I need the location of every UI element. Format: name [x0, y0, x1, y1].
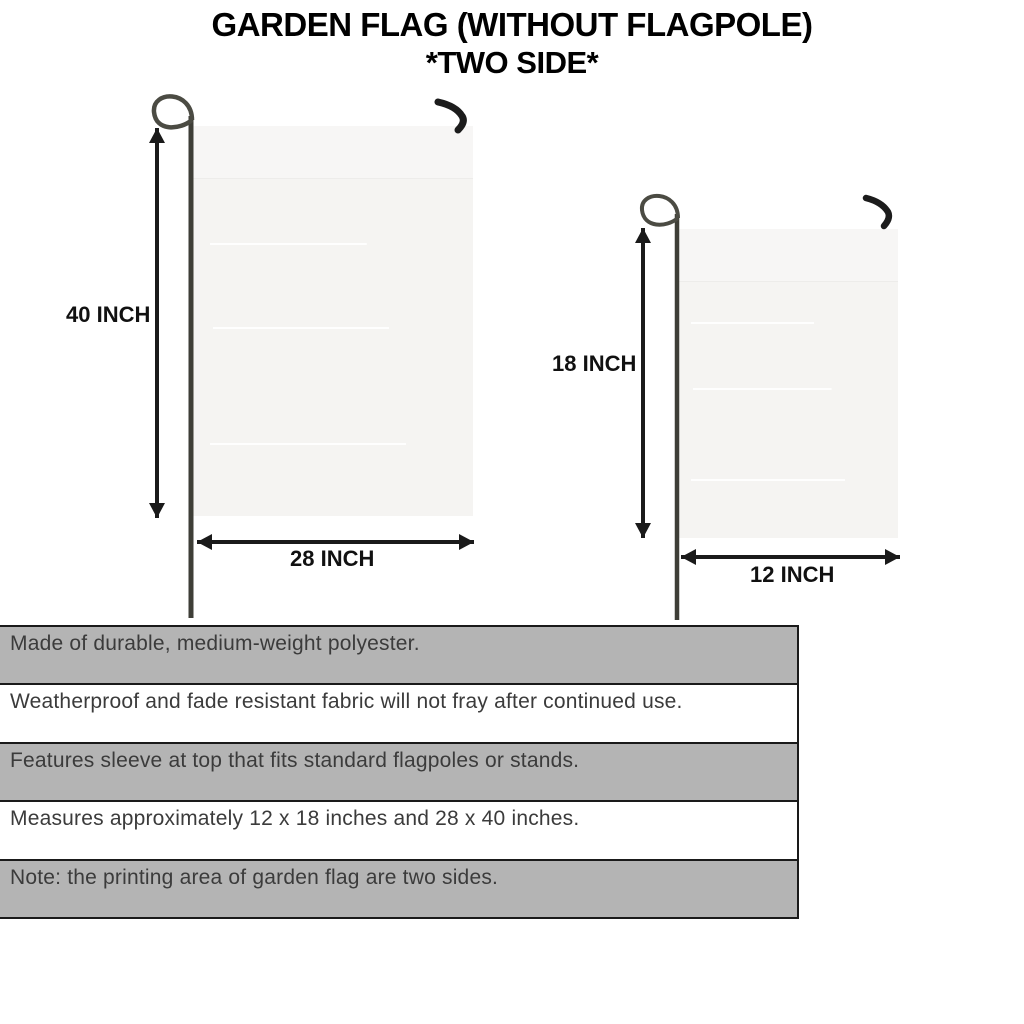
features-table: Made of durable, medium-weight polyester…	[0, 625, 799, 919]
title-line-2: *TWO SIDE*	[0, 45, 1024, 82]
small-flag-width-arrow	[681, 555, 900, 559]
title-line-1: GARDEN FLAG (WITHOUT FLAGPOLE)	[0, 6, 1024, 45]
feature-row-note: Note: the printing area of garden flag a…	[0, 859, 797, 917]
large-flag-height-label: 40 INCH	[66, 302, 150, 328]
pole-loop-icon	[642, 196, 678, 225]
small-flag-height-label: 18 INCH	[552, 351, 636, 377]
feature-row-polyester: Made of durable, medium-weight polyester…	[0, 627, 797, 683]
pole-hook-icon	[438, 102, 463, 130]
small-flag-width-label: 12 INCH	[750, 562, 834, 588]
large-flag-height-arrow	[155, 128, 159, 518]
large-flag-width-label: 28 INCH	[290, 546, 374, 572]
pole-hook-icon	[866, 198, 889, 226]
page-title: GARDEN FLAG (WITHOUT FLAGPOLE) *TWO SIDE…	[0, 6, 1024, 82]
feature-row-weatherproof: Weatherproof and fade resistant fabric w…	[0, 683, 797, 741]
pole-loop-icon	[154, 96, 192, 127]
feature-row-measures: Measures approximately 12 x 18 inches an…	[0, 800, 797, 858]
feature-row-sleeve: Features sleeve at top that fits standar…	[0, 742, 797, 800]
small-flag-height-arrow	[641, 228, 645, 538]
large-flag-width-arrow	[197, 540, 474, 544]
